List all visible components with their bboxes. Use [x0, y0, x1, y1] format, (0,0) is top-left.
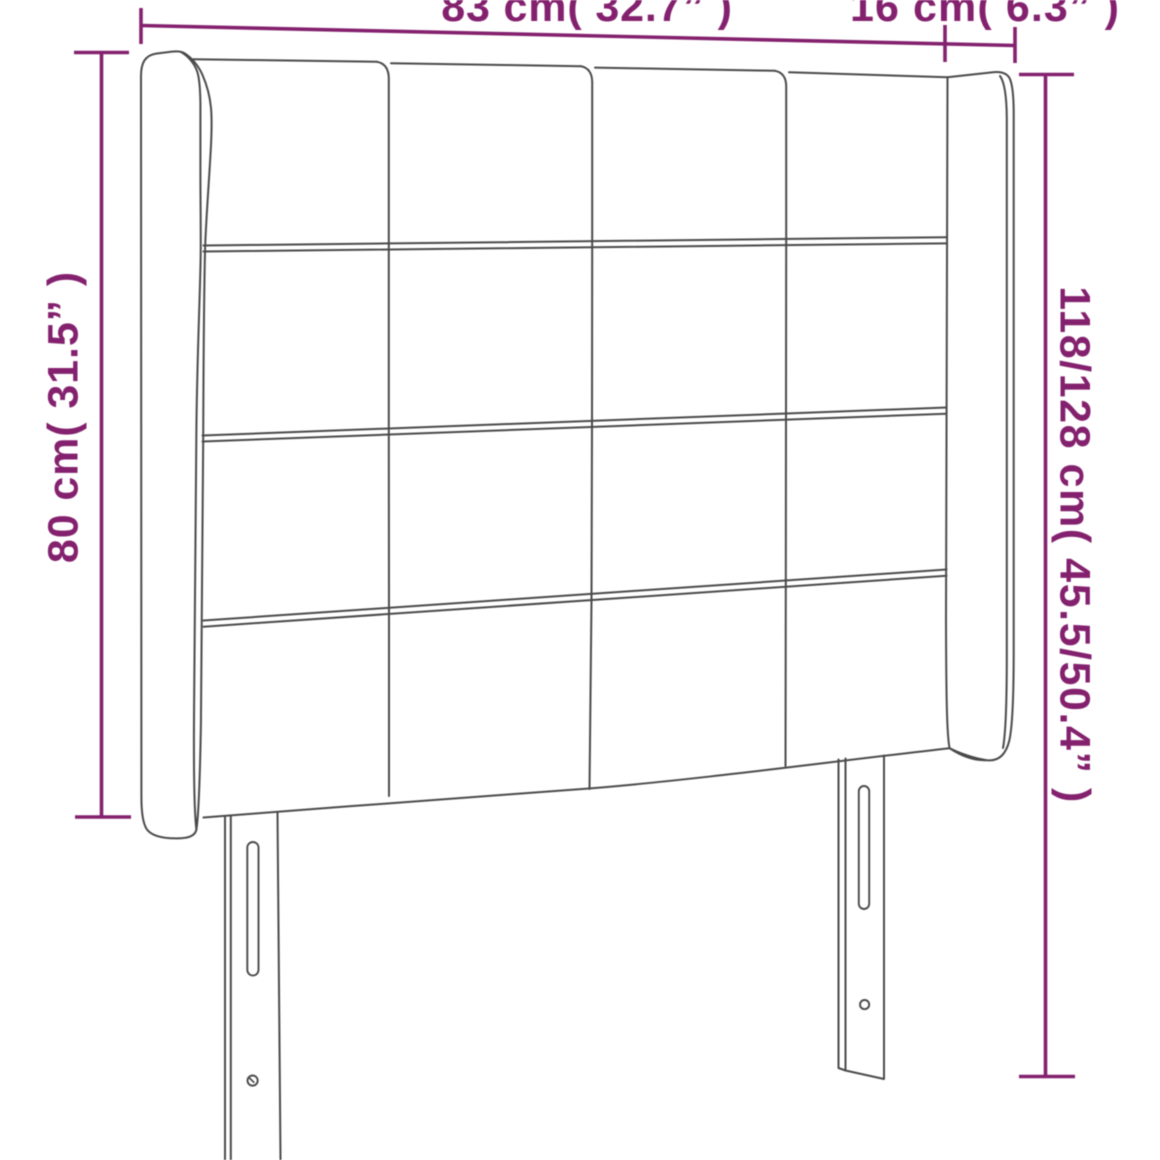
svg-text:16 cm( 6.3” ): 16 cm( 6.3” ): [850, 0, 1120, 31]
svg-text:83 cm( 32.7” ): 83 cm( 32.7” ): [441, 0, 733, 31]
svg-text:118/128 cm( 45.5/50.4” ): 118/128 cm( 45.5/50.4” ): [1051, 286, 1099, 804]
svg-text:80 cm( 31.5” ): 80 cm( 31.5” ): [40, 271, 88, 563]
